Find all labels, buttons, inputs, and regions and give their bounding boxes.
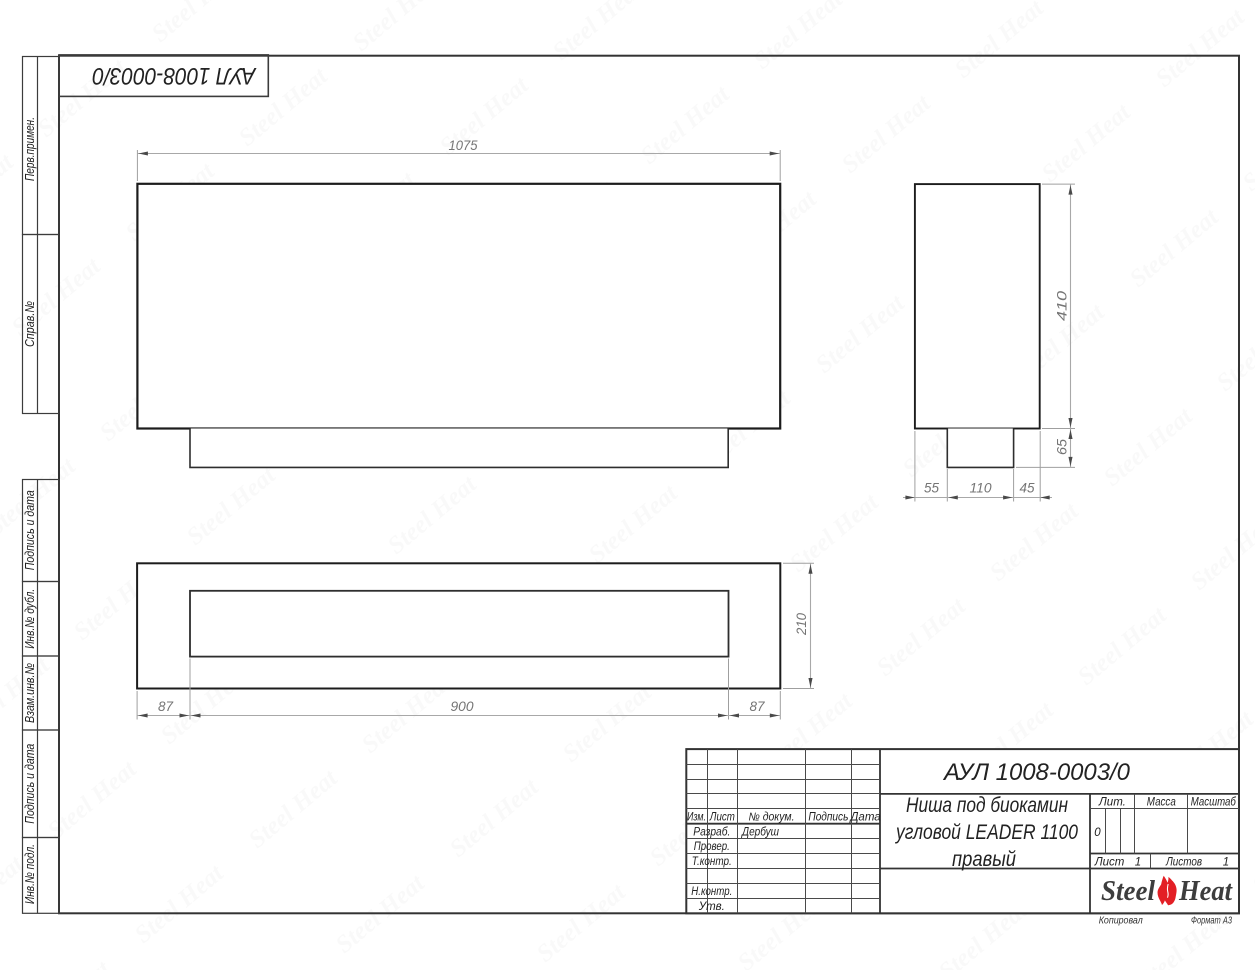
svg-text:Взам.инв.№: Взам.инв.№ (22, 663, 37, 723)
svg-text:Steel Heat: Steel Heat (182, 461, 282, 551)
svg-text:Разраб.: Разраб. (693, 826, 730, 838)
svg-text:Т.контр.: Т.контр. (692, 856, 732, 868)
svg-text:Steel Heat: Steel Heat (383, 470, 483, 560)
svg-text:Steel: Steel (1101, 876, 1155, 907)
svg-text:Steel Heat: Steel Heat (147, 0, 247, 48)
svg-text:Подпись: Подпись (808, 812, 848, 824)
svg-text:Дата: Дата (848, 812, 880, 824)
svg-text:Steel Heat: Steel Heat (1212, 307, 1255, 397)
svg-text:Ниша под биокамин: Ниша под биокамин (906, 794, 1068, 817)
svg-text:Steel Heat: Steel Heat (1037, 98, 1137, 188)
svg-text:Steel Heat: Steel Heat (1238, 107, 1255, 197)
svg-text:1075: 1075 (449, 137, 478, 153)
svg-text:Steel Heat: Steel Heat (348, 0, 448, 57)
svg-text:Steel Heat: Steel Heat (1125, 203, 1225, 293)
svg-text:Steel Heat: Steel Heat (0, 0, 45, 39)
svg-text:Листов: Листов (1165, 856, 1202, 868)
svg-text:№ докум.: № докум. (749, 812, 795, 824)
svg-text:Утв.: Утв. (698, 901, 725, 913)
svg-text:Steel Heat: Steel Heat (17, 955, 117, 970)
svg-text:Steel Heat: Steel Heat (445, 773, 545, 863)
svg-text:Steel Heat: Steel Heat (0, 452, 81, 542)
svg-text:Лист: Лист (709, 812, 735, 824)
svg-text:Подпись и дата: Подпись и дата (22, 744, 37, 824)
svg-text:Steel Heat: Steel Heat (785, 488, 885, 578)
svg-text:Steel Heat: Steel Heat (130, 859, 230, 949)
svg-text:410: 410 (1054, 291, 1070, 321)
svg-text:Лист: Лист (1094, 856, 1125, 868)
svg-text:Steel Heat: Steel Heat (1151, 3, 1251, 93)
svg-text:Лит.: Лит. (1098, 797, 1126, 809)
svg-text:Steel Heat: Steel Heat (950, 0, 1050, 84)
svg-text:87: 87 (750, 698, 766, 714)
svg-text:Steel Heat: Steel Heat (1248, 810, 1255, 900)
svg-text:45: 45 (1020, 480, 1035, 496)
svg-text:900: 900 (451, 698, 474, 714)
svg-text:Инв.№ подл.: Инв.№ подл. (22, 844, 37, 904)
svg-text:Steel Heat: Steel Heat (1186, 506, 1255, 596)
svg-text:Steel Heat: Steel Heat (1073, 601, 1173, 691)
svg-text:Steel Heat: Steel Heat (811, 289, 911, 379)
svg-text:Steel Heat: Steel Heat (43, 755, 143, 845)
svg-text:Steel Heat: Steel Heat (749, 0, 849, 75)
svg-text:Heat: Heat (1178, 876, 1233, 907)
svg-text:Перв.примен.: Перв.примен. (22, 117, 37, 181)
svg-text:Инв.№ дубл.: Инв.№ дубл. (22, 589, 37, 649)
svg-text:Steel Heat: Steel Heat (0, 148, 19, 238)
svg-text:Масса: Масса (1147, 797, 1176, 809)
svg-text:Steel Heat: Steel Heat (558, 678, 658, 768)
svg-text:АУЛ 1008-0003/0: АУЛ 1008-0003/0 (942, 759, 1131, 786)
svg-text:Steel Heat: Steel Heat (584, 479, 684, 569)
svg-text:55: 55 (924, 480, 939, 496)
svg-text:65: 65 (1054, 439, 1070, 455)
svg-text:210: 210 (793, 613, 809, 636)
svg-text:Steel Heat: Steel Heat (837, 89, 937, 179)
svg-text:угловой LEADER 1100: угловой LEADER 1100 (894, 821, 1078, 844)
svg-text:Steel Heat: Steel Heat (532, 878, 632, 968)
svg-text:Н.контр.: Н.контр. (691, 886, 732, 898)
svg-text:0: 0 (1094, 827, 1101, 839)
svg-text:Steel Heat: Steel Heat (244, 764, 344, 854)
svg-text:Провер.: Провер. (694, 841, 730, 853)
svg-text:Дербуш: Дербуш (740, 826, 779, 838)
svg-text:Steel Heat: Steel Heat (636, 80, 736, 170)
svg-text:Steel Heat: Steel Heat (1099, 402, 1199, 492)
svg-text:Копировал: Копировал (1099, 916, 1143, 927)
svg-text:Изм.: Изм. (687, 812, 706, 824)
svg-text:Steel Heat: Steel Heat (985, 497, 1085, 587)
svg-text:110: 110 (970, 480, 992, 496)
svg-text:1: 1 (1135, 856, 1141, 868)
svg-text:Масштаб: Масштаб (1191, 797, 1236, 809)
svg-text:87: 87 (158, 698, 174, 714)
svg-text:Подпись и дата: Подпись и дата (22, 490, 37, 570)
svg-text:Справ.№: Справ.№ (22, 301, 37, 347)
svg-text:правый: правый (952, 848, 1016, 871)
svg-text:АУЛ 1008-0003/0: АУЛ 1008-0003/0 (92, 62, 257, 89)
svg-text:1: 1 (1223, 856, 1229, 868)
svg-text:Steel Heat: Steel Heat (872, 592, 972, 682)
svg-text:Формат А3: Формат А3 (1191, 916, 1232, 927)
